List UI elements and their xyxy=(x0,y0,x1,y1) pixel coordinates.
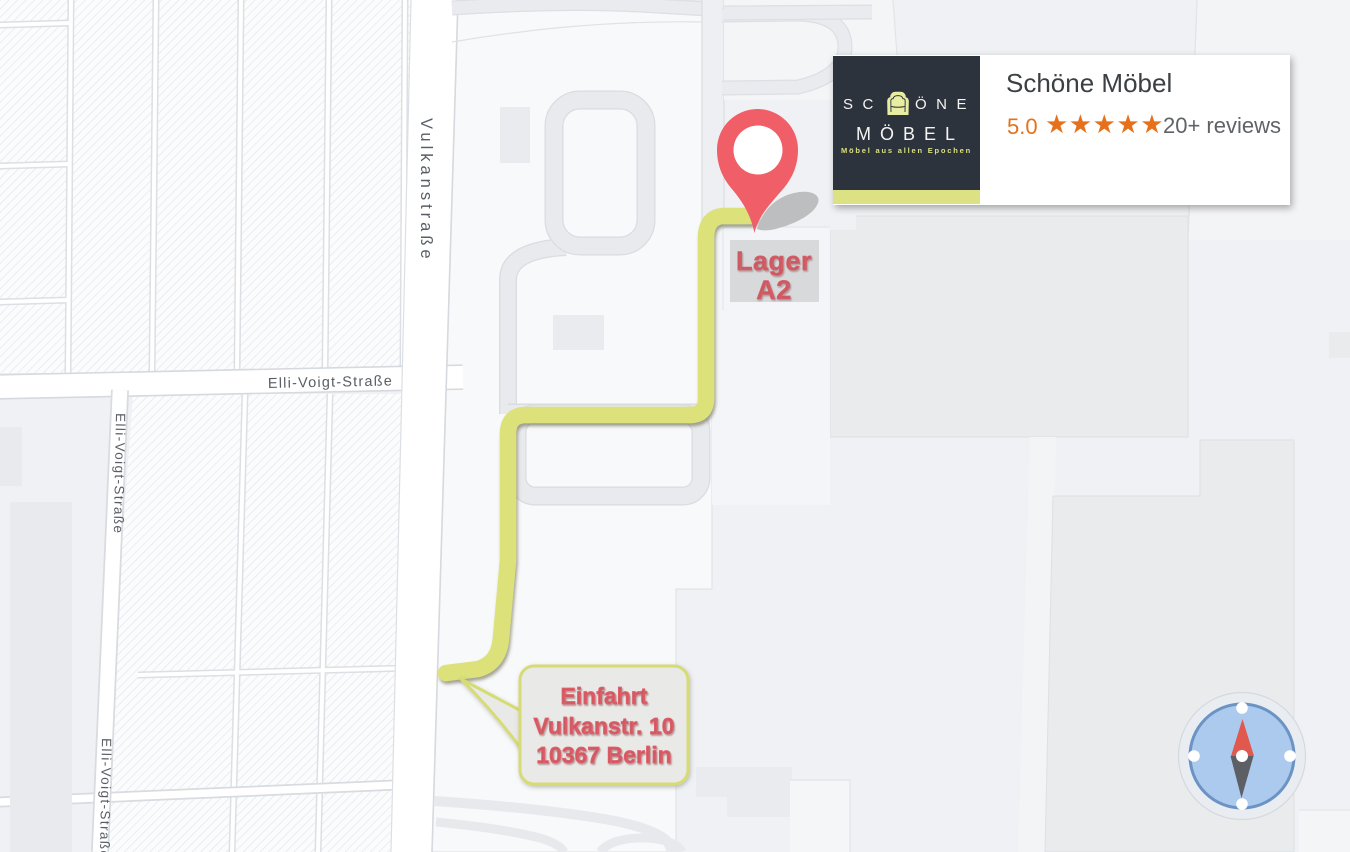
svg-text:Vulkanstraße: Vulkanstraße xyxy=(417,118,435,263)
svg-text:Elli-Voigt-Straße: Elli-Voigt-Straße xyxy=(97,738,114,852)
svg-text:Lager: Lager xyxy=(736,246,812,276)
svg-text:Elli-Voigt-Straße: Elli-Voigt-Straße xyxy=(111,413,128,535)
svg-text:Elli-Voigt-Straße: Elli-Voigt-Straße xyxy=(268,373,393,392)
svg-text:Vulkanstr. 10: Vulkanstr. 10 xyxy=(533,713,674,739)
svg-text:Einfahrt: Einfahrt xyxy=(561,683,648,709)
svg-text:A2: A2 xyxy=(756,275,792,305)
svg-text:10367 Berlin: 10367 Berlin xyxy=(536,742,672,768)
